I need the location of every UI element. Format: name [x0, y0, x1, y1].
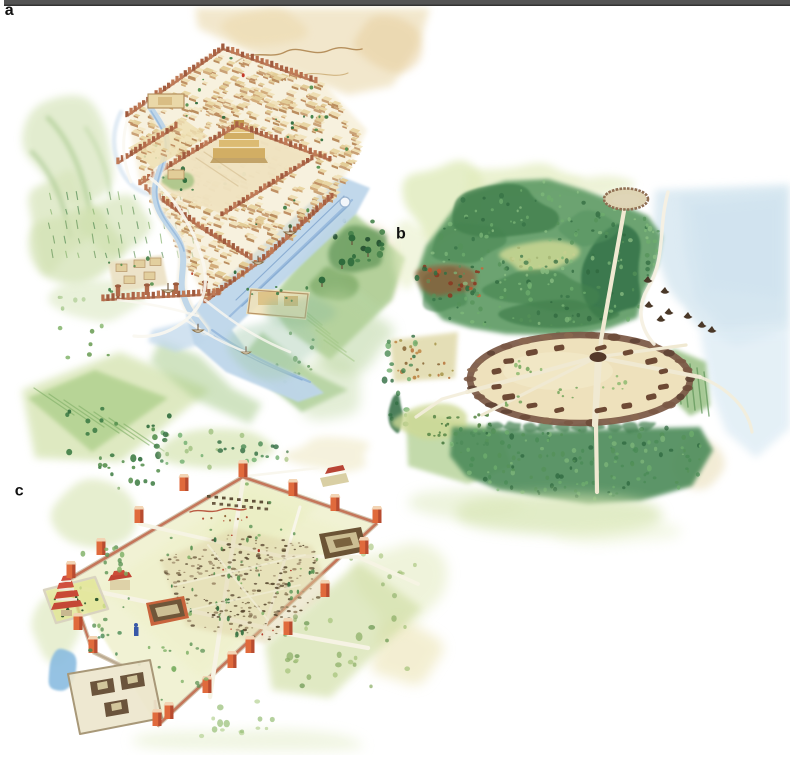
svg-text:b: b	[396, 225, 406, 242]
svg-text:a: a	[5, 2, 14, 19]
svg-text:c: c	[15, 483, 24, 500]
